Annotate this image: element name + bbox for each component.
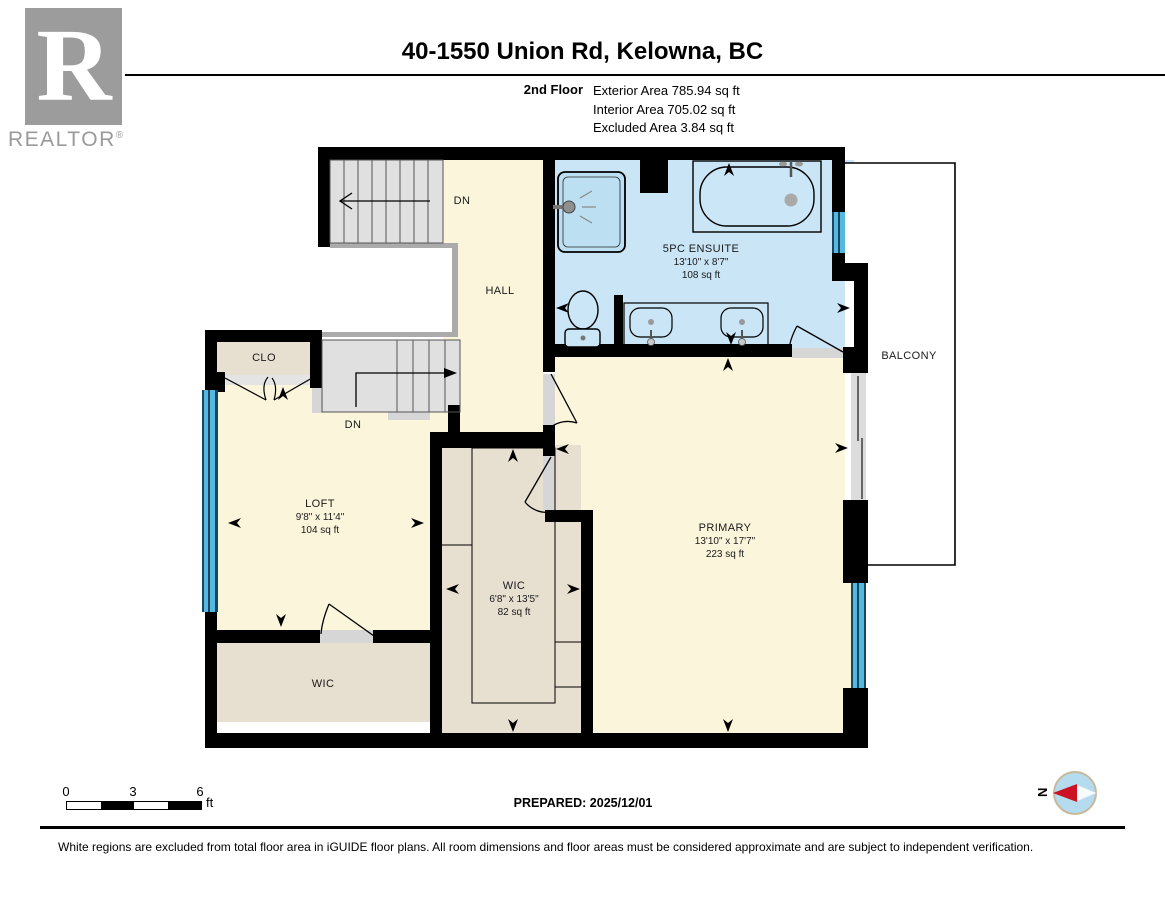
wall-segment bbox=[430, 432, 442, 733]
interior-area: Interior Area 705.02 sq ft bbox=[593, 101, 740, 120]
room-label-wic: WIC 6'8" x 13'5" 82 sq ft bbox=[489, 579, 538, 619]
room-label-ensuite: 5PC ENSUITE 13'10" x 8'7" 108 sq ft bbox=[663, 242, 740, 282]
door-threshold-wic bbox=[543, 455, 555, 510]
stairs-upper-fill bbox=[330, 160, 443, 243]
floorplan-page: R REALTOR® 40-1550 Union Rd, Kelowna, BC… bbox=[0, 0, 1165, 900]
stairwell-void bbox=[330, 248, 452, 332]
exterior-area: Exterior Area 785.94 sq ft bbox=[593, 82, 740, 101]
closet-opening bbox=[222, 375, 312, 385]
wall-segment bbox=[640, 160, 668, 193]
window-loft bbox=[202, 390, 218, 612]
wall-segment bbox=[832, 263, 868, 281]
compass-north-label: N bbox=[1035, 788, 1050, 797]
sliding-door-balcony bbox=[851, 373, 866, 500]
page-title: 40-1550 Union Rd, Kelowna, BC bbox=[0, 38, 1165, 66]
scale-bar-segment bbox=[101, 802, 135, 809]
realtor-wordmark: REALTOR® bbox=[8, 128, 125, 152]
room-label-closet: CLO bbox=[252, 351, 276, 365]
stair-rail bbox=[330, 243, 458, 248]
wall-segment bbox=[205, 372, 225, 392]
door-threshold-ensuite bbox=[792, 348, 843, 358]
area-stats: Exterior Area 785.94 sq ft Interior Area… bbox=[593, 82, 740, 138]
room-label-hall: HALL bbox=[485, 284, 514, 298]
stairs-lower-fill bbox=[322, 340, 460, 412]
scale-bar bbox=[66, 801, 202, 810]
stairs-upper-label: DN bbox=[454, 194, 471, 208]
wall-segment bbox=[217, 630, 320, 643]
wall-segment bbox=[430, 432, 555, 448]
room-label-loft: LOFT 9'8" x 11'4" 104 sq ft bbox=[296, 497, 345, 537]
room-label-balcony: BALCONY bbox=[881, 349, 936, 363]
door-threshold-hall bbox=[543, 374, 555, 425]
scale-tick-0: 0 bbox=[62, 784, 69, 799]
excluded-area: Excluded Area 3.84 sq ft bbox=[593, 119, 740, 138]
scale-tick-3: 3 bbox=[129, 784, 136, 799]
wall-segment bbox=[205, 330, 322, 342]
stair-rail bbox=[452, 243, 458, 337]
realtor-logo-icon: R bbox=[25, 8, 122, 125]
disclaimer-text: White regions are excluded from total fl… bbox=[58, 840, 1118, 854]
wall-segment bbox=[614, 295, 623, 347]
wall-segment bbox=[205, 610, 217, 733]
wall-segment bbox=[854, 281, 868, 373]
window-primary bbox=[851, 583, 866, 688]
window-ensuite bbox=[832, 212, 845, 253]
scale-bar-segment bbox=[168, 802, 202, 809]
wall-segment bbox=[843, 500, 868, 583]
wall-segment bbox=[555, 344, 792, 357]
door-threshold-loft bbox=[320, 630, 373, 643]
wall-segment bbox=[310, 330, 322, 388]
stair-rail bbox=[322, 332, 458, 337]
header-divider bbox=[125, 74, 1165, 76]
scale-unit: ft bbox=[206, 795, 213, 810]
wall-segment bbox=[543, 160, 555, 372]
footer-divider bbox=[40, 826, 1125, 829]
compass-icon: N bbox=[1028, 765, 1118, 823]
wall-segment bbox=[373, 630, 430, 643]
door-jamb bbox=[312, 388, 323, 413]
wall-segment bbox=[205, 733, 868, 748]
wall-segment bbox=[318, 147, 845, 160]
wall-segment bbox=[318, 147, 330, 247]
room-label-wic2: WIC bbox=[312, 677, 335, 691]
excluded-strip bbox=[217, 722, 430, 733]
prepared-date: PREPARED: 2025/12/01 bbox=[433, 796, 733, 810]
stairs-lower-label: DN bbox=[345, 418, 362, 432]
wall-segment bbox=[832, 160, 845, 212]
stair-threshold bbox=[388, 412, 430, 420]
room-label-primary: PRIMARY 13'10" x 17'7" 223 sq ft bbox=[695, 521, 755, 561]
wall-segment bbox=[581, 515, 593, 733]
floor-label: 2nd Floor bbox=[420, 82, 583, 97]
scale-tick-6: 6 bbox=[196, 784, 203, 799]
